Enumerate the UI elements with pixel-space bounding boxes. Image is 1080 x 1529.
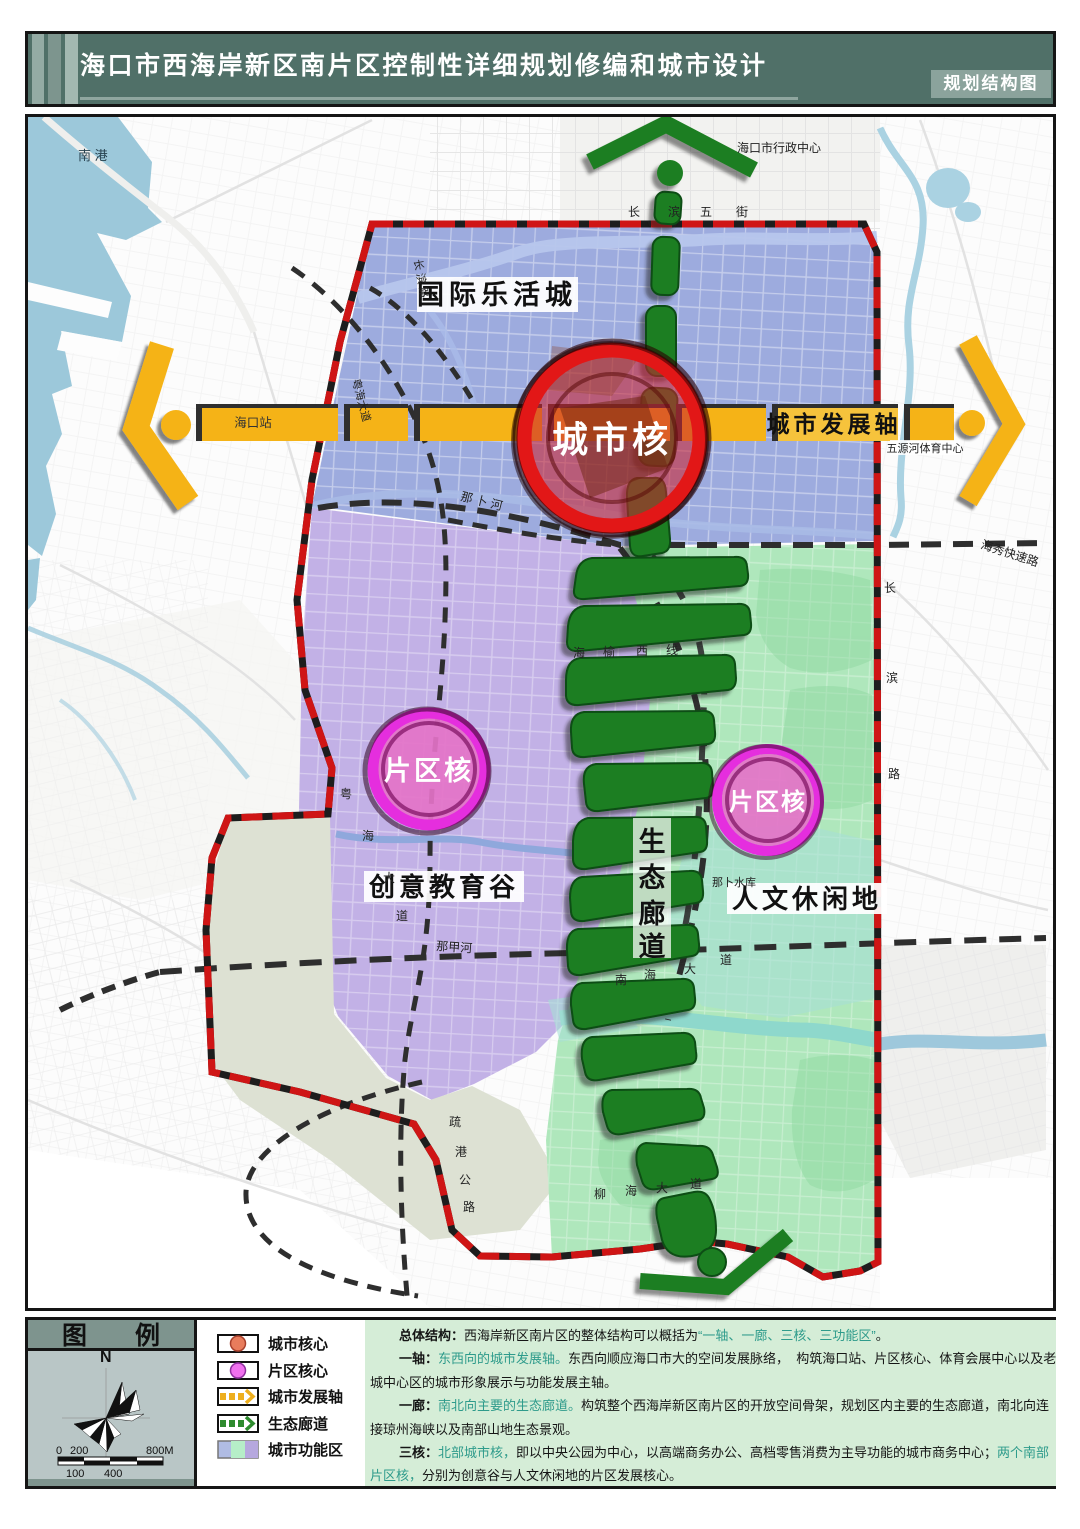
svg-text:路: 路 xyxy=(463,1199,475,1214)
svg-text:生: 生 xyxy=(639,827,666,857)
svg-text:五源河体育中心: 五源河体育中心 xyxy=(887,441,964,455)
svg-text:片区核: 片区核 xyxy=(729,788,807,816)
svg-text:路: 路 xyxy=(888,766,900,781)
svg-text:长: 长 xyxy=(628,205,640,219)
svg-text:南 港: 南 港 xyxy=(78,148,108,163)
svg-text:城市发展轴: 城市发展轴 xyxy=(767,411,902,437)
svg-text:线: 线 xyxy=(666,643,678,657)
svg-text:200: 200 xyxy=(70,1445,88,1457)
svg-text:海: 海 xyxy=(573,645,585,660)
svg-text:国际乐活城: 国际乐活城 xyxy=(417,280,577,310)
svg-text:大: 大 xyxy=(684,962,696,976)
svg-text:N: N xyxy=(100,1349,112,1366)
svg-text:道: 道 xyxy=(396,909,408,923)
svg-text:道: 道 xyxy=(690,1177,702,1191)
svg-text:片区核: 片区核 xyxy=(384,755,474,786)
svg-text:廊: 廊 xyxy=(639,898,666,929)
svg-text:海口市行政中心: 海口市行政中心 xyxy=(737,140,821,155)
svg-text:南: 南 xyxy=(615,972,627,987)
svg-text:道: 道 xyxy=(639,931,666,962)
svg-text:0: 0 xyxy=(56,1445,62,1457)
svg-text:海: 海 xyxy=(362,828,374,843)
svg-text:粤: 粤 xyxy=(340,786,352,801)
svg-text:五: 五 xyxy=(700,205,712,219)
svg-text:大: 大 xyxy=(383,871,395,885)
svg-text:海口站: 海口站 xyxy=(234,415,272,430)
svg-text:柳: 柳 xyxy=(594,1187,606,1201)
svg-text:榆: 榆 xyxy=(603,644,615,659)
svg-text:疏: 疏 xyxy=(449,1114,461,1129)
svg-text:800M: 800M xyxy=(146,1445,174,1457)
svg-text:态: 态 xyxy=(639,863,666,893)
svg-text:那甲河: 那甲河 xyxy=(436,939,473,955)
svg-text:滨: 滨 xyxy=(886,670,898,685)
svg-text:长: 长 xyxy=(884,581,896,595)
svg-text:西: 西 xyxy=(636,644,648,658)
svg-text:港: 港 xyxy=(455,1145,467,1159)
svg-text:海: 海 xyxy=(644,967,656,982)
svg-text:滨: 滨 xyxy=(668,204,680,219)
svg-text:道: 道 xyxy=(720,953,732,967)
svg-text:街: 街 xyxy=(736,205,748,219)
svg-text:海: 海 xyxy=(625,1183,637,1198)
svg-text:公: 公 xyxy=(459,1173,471,1187)
svg-text:城市核: 城市核 xyxy=(552,419,672,460)
svg-text:大: 大 xyxy=(656,1181,668,1195)
svg-text:那卜水库: 那卜水库 xyxy=(712,876,756,889)
